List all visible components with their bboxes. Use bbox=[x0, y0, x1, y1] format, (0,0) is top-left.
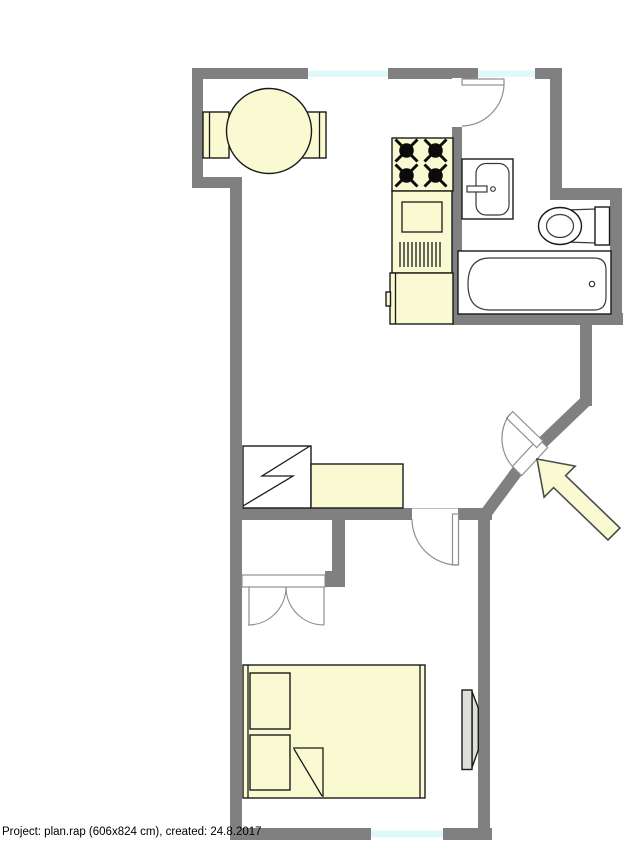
wall-bottom bbox=[230, 828, 492, 840]
bedroom bbox=[243, 665, 478, 798]
bedroom-door bbox=[412, 509, 459, 566]
entrance-arrow bbox=[537, 459, 620, 540]
wall-hall-right bbox=[580, 320, 592, 406]
top-left-window bbox=[308, 68, 388, 79]
closet-door-frame bbox=[242, 575, 325, 587]
floor-plan-canvas bbox=[0, 0, 626, 844]
entrance-door-leaf bbox=[507, 412, 544, 448]
pillow-bottom bbox=[250, 735, 290, 790]
toilet bbox=[539, 207, 610, 245]
pillow-top bbox=[250, 673, 290, 729]
wall-bath-right bbox=[610, 194, 622, 325]
dining-table bbox=[227, 89, 312, 174]
wall-left-upper bbox=[192, 68, 203, 188]
floor-plan-app: Project: plan.rap (606x824 cm), created:… bbox=[0, 0, 626, 844]
dining-chair-left bbox=[203, 112, 229, 158]
project-footer: Project: plan.rap (606x824 cm), created:… bbox=[2, 826, 262, 838]
hall bbox=[243, 446, 620, 540]
bedroom-window bbox=[371, 828, 443, 840]
bathtub-drain bbox=[589, 281, 594, 286]
sink-drain bbox=[491, 187, 496, 192]
top-right-window bbox=[478, 68, 535, 79]
wall-bath-bottom bbox=[452, 313, 623, 325]
closet-door-swing-left bbox=[248, 587, 286, 625]
wall-closet-jamb bbox=[325, 571, 345, 587]
bathroom-door-swing bbox=[462, 85, 504, 126]
wall-diagonal-upper bbox=[541, 399, 588, 444]
wall-right-kitchen bbox=[550, 68, 562, 194]
wardrobe bbox=[243, 446, 311, 508]
toilet-tank bbox=[595, 207, 610, 245]
radiator bbox=[462, 690, 478, 770]
bathtub bbox=[458, 251, 611, 314]
kitchen-counter bbox=[392, 191, 452, 273]
bedroom-door-swing bbox=[412, 519, 458, 565]
wall-right-bedroom bbox=[478, 512, 490, 840]
dining-set bbox=[203, 89, 326, 174]
refrigerator bbox=[386, 273, 453, 324]
bathroom-door bbox=[452, 78, 504, 127]
wall-diagonal-lower bbox=[481, 470, 518, 520]
bed bbox=[243, 665, 425, 798]
bedroom-door-leaf bbox=[453, 514, 459, 565]
sideboard bbox=[311, 464, 403, 508]
bathroom-sink bbox=[462, 159, 513, 219]
kitchen bbox=[386, 138, 453, 324]
closet-door-swing-right bbox=[286, 587, 324, 625]
closet-double-door bbox=[242, 575, 325, 625]
refrigerator-handle bbox=[386, 292, 391, 306]
bathroom bbox=[458, 159, 611, 314]
bathroom-door-leaf bbox=[462, 79, 504, 85]
sink-faucet bbox=[467, 186, 487, 192]
